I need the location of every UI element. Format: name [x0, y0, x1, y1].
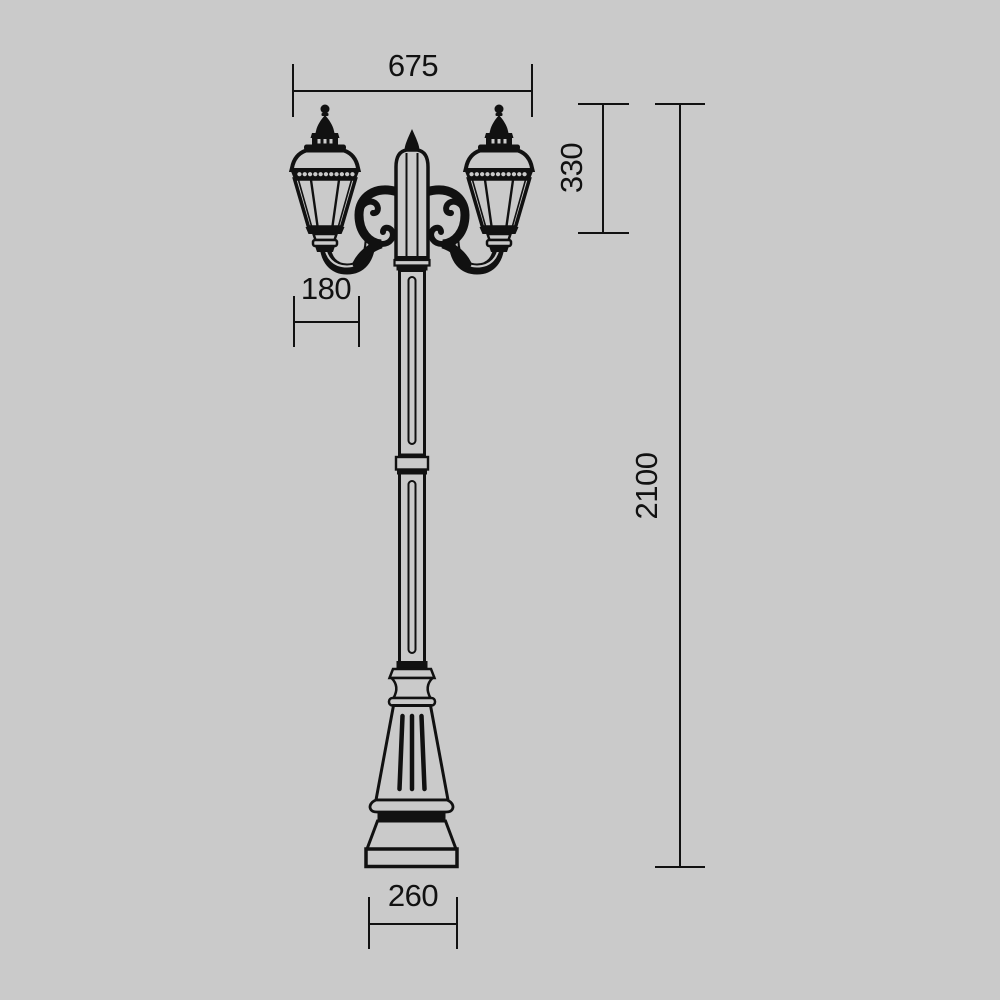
pole-collar: [396, 454, 428, 475]
lamp-post-dimension-drawing: 675 330 180 2100 260: [0, 0, 1000, 1000]
drawing-canvas: 675 330 180 2100 260: [0, 0, 1000, 1000]
dim-lantern-width-value: 180: [301, 271, 351, 306]
base-plinth: [366, 849, 457, 867]
pole: [396, 271, 428, 663]
right-arm-and-lantern: [426, 105, 534, 270]
dim-lantern-width: 180: [294, 271, 359, 347]
dim-overall-width-value: 675: [388, 48, 438, 83]
dim-base-width: 260: [369, 878, 457, 949]
dim-lantern-height-value: 330: [554, 143, 589, 193]
dim-base-width-value: 260: [388, 878, 438, 913]
center-finial: [395, 129, 430, 271]
dim-overall-height-value: 2100: [629, 452, 664, 519]
lamp-post-illustration: [291, 105, 534, 867]
dim-overall-height: 2100: [629, 104, 705, 867]
left-arm-and-lantern: [291, 105, 399, 270]
base: [366, 661, 457, 867]
dim-lantern-height: 330: [554, 104, 629, 233]
